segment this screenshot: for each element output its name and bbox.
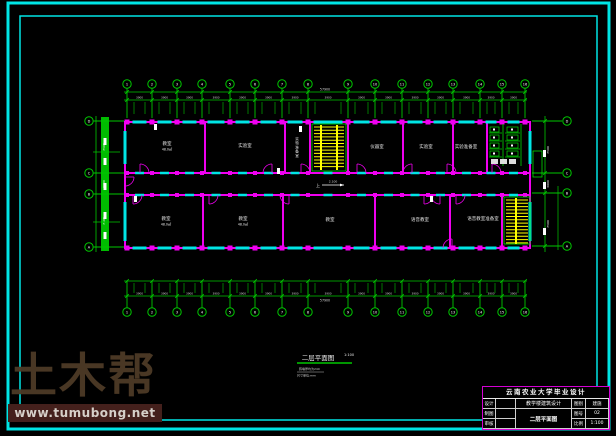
dim-bay-top: 3900 bbox=[239, 96, 246, 100]
axis-number-top: 14 bbox=[478, 83, 483, 87]
axis-letter-right: D bbox=[566, 120, 569, 124]
axis-number-top: 12 bbox=[426, 83, 430, 87]
room-area: 48.0㎡ bbox=[238, 222, 249, 227]
axis-number-top: 6 bbox=[254, 83, 256, 87]
tb-scale-label: 比例 bbox=[572, 419, 586, 429]
fixture-dot bbox=[511, 145, 513, 147]
axis-number-top: 7 bbox=[281, 83, 283, 87]
dim-text-blob bbox=[543, 228, 546, 235]
axis-number-top: 2 bbox=[151, 83, 153, 87]
pier bbox=[478, 193, 482, 197]
pier bbox=[306, 193, 310, 197]
dim-bay-top: 3900 bbox=[136, 96, 143, 100]
pier bbox=[200, 246, 205, 251]
pier bbox=[373, 246, 378, 251]
door-leaf-blob bbox=[154, 124, 157, 130]
dim-bay-bottom: 3900 bbox=[463, 292, 470, 296]
pier bbox=[280, 193, 284, 197]
pier bbox=[523, 171, 527, 175]
fixture-dot bbox=[511, 137, 513, 139]
room-label: 实验室 bbox=[238, 142, 252, 149]
pier bbox=[125, 120, 130, 125]
axis-number-top: 15 bbox=[500, 83, 504, 87]
dim-bay-top: 3900 bbox=[437, 96, 444, 100]
dim-bay-bottom: 3900 bbox=[385, 292, 392, 296]
pier bbox=[306, 171, 310, 175]
pier bbox=[228, 171, 232, 175]
pier bbox=[523, 246, 528, 251]
dim-bay-bottom: 3900 bbox=[239, 292, 246, 296]
tb-draft-label: 制图 bbox=[483, 409, 496, 419]
watermark-url: www.tumubong.net bbox=[8, 404, 162, 422]
dim-bay-top: 3900 bbox=[291, 96, 298, 100]
pier bbox=[346, 193, 350, 197]
corridor-level: 2.100 bbox=[329, 180, 338, 184]
tb-drawing-name: 二层平面图 bbox=[516, 409, 572, 429]
pier bbox=[150, 120, 155, 125]
plan-caption-scale: 1:100 bbox=[344, 353, 354, 357]
dim-bay-bottom: 3900 bbox=[136, 292, 143, 296]
pier bbox=[451, 193, 455, 197]
axis-number-top: 3 bbox=[176, 83, 178, 87]
tb-sheet-type-label: 图别 bbox=[572, 399, 586, 409]
dim-bay-bottom: 3900 bbox=[358, 292, 365, 296]
dim-bay-top: 3900 bbox=[324, 96, 331, 100]
tb-check-name bbox=[496, 419, 516, 429]
pier bbox=[228, 193, 232, 197]
dim-left-value: 7500 bbox=[102, 143, 106, 151]
axis-number-bottom: 9 bbox=[347, 311, 349, 315]
door-leaf-blob bbox=[430, 196, 433, 202]
pier bbox=[228, 246, 233, 251]
door-leaf-blob bbox=[299, 126, 302, 132]
axis-number-bottom: 11 bbox=[400, 311, 404, 315]
room-label: 语音教室准备室 bbox=[467, 215, 499, 222]
stair-arrow-head bbox=[340, 184, 344, 187]
axis-number-top: 9 bbox=[347, 83, 349, 87]
pier bbox=[373, 171, 377, 175]
door-arc bbox=[140, 164, 149, 173]
axis-number-top: 13 bbox=[451, 83, 455, 87]
title-block-title: 云南农业大学毕业设计 bbox=[483, 387, 609, 399]
pier bbox=[280, 246, 285, 251]
pier bbox=[125, 171, 129, 175]
dim-text-blob bbox=[104, 232, 107, 239]
watermark-logo: 土木帮 bbox=[10, 351, 310, 403]
dim-bay-bottom: 3900 bbox=[510, 292, 517, 296]
tb-design-name bbox=[496, 399, 516, 409]
axis-number-bottom: 10 bbox=[373, 311, 377, 315]
stair-up-label: 上 bbox=[316, 182, 320, 188]
pier bbox=[175, 246, 180, 251]
tb-draft-name bbox=[496, 409, 516, 419]
tb-scale-value: 1:100 bbox=[586, 419, 609, 429]
dim-bay-top: 3900 bbox=[411, 96, 418, 100]
room-label: 实验准备室 bbox=[455, 143, 478, 150]
pier bbox=[125, 193, 129, 197]
fixture-dot bbox=[511, 153, 513, 155]
room-label: 仪器室 bbox=[370, 143, 384, 150]
tb-sheet-type: 建施 bbox=[586, 399, 609, 409]
pier bbox=[400, 193, 404, 197]
dim-bay-top: 3900 bbox=[463, 96, 470, 100]
pier bbox=[306, 246, 311, 251]
axis-number-bottom: 1 bbox=[126, 311, 128, 315]
axis-number-bottom: 3 bbox=[176, 311, 178, 315]
pier bbox=[478, 246, 483, 251]
pier bbox=[523, 193, 527, 197]
cad-sheet: 1234567891011121314151657900390039003900… bbox=[0, 0, 616, 436]
pier bbox=[175, 171, 179, 175]
room-label: 教室 bbox=[326, 216, 335, 223]
axis-number-bottom: 7 bbox=[281, 311, 283, 315]
pier bbox=[253, 120, 258, 125]
dim-right-value: 3000 bbox=[546, 180, 550, 188]
axis-number-bottom: 14 bbox=[478, 311, 483, 315]
pier bbox=[500, 193, 504, 197]
door-arc bbox=[456, 195, 465, 204]
pier bbox=[346, 246, 351, 251]
dim-bay-bottom: 3900 bbox=[161, 292, 168, 296]
dim-bay-top: 3900 bbox=[186, 96, 193, 100]
dim-bay-bottom: 3900 bbox=[411, 292, 418, 296]
pier bbox=[373, 120, 378, 125]
pier bbox=[426, 246, 431, 251]
pier bbox=[500, 246, 505, 251]
pier bbox=[253, 171, 257, 175]
dim-bay-top: 3900 bbox=[487, 96, 494, 100]
dim-bay-top: 3900 bbox=[265, 96, 272, 100]
dim-bay-bottom: 3900 bbox=[487, 292, 494, 296]
room-area: 48.0㎡ bbox=[162, 147, 173, 152]
pier bbox=[478, 171, 482, 175]
dim-overall-top: 57900 bbox=[320, 88, 330, 92]
title-block-grid: 设计 教学楼建筑设计 图别 建施 制图 二层平面图 图号 02 审核 比例 1:… bbox=[483, 399, 609, 429]
dim-bay-bottom: 3900 bbox=[324, 292, 331, 296]
fixture-dot bbox=[493, 129, 495, 131]
dim-left-value: 7500 bbox=[102, 217, 106, 225]
door-arc bbox=[357, 164, 366, 173]
dim-bay-bottom: 3900 bbox=[186, 292, 193, 296]
pier bbox=[451, 246, 456, 251]
pier bbox=[253, 246, 258, 251]
axis-number-bottom: 6 bbox=[254, 311, 256, 315]
dim-bay-top: 3900 bbox=[385, 96, 392, 100]
pier bbox=[150, 171, 154, 175]
pier bbox=[200, 120, 205, 125]
pier bbox=[175, 193, 179, 197]
dim-bay-top: 3900 bbox=[510, 96, 517, 100]
pier bbox=[451, 171, 455, 175]
pier bbox=[426, 193, 430, 197]
axis-number-bottom: 8 bbox=[307, 311, 309, 315]
dim-overall-bottom: 57900 bbox=[320, 299, 330, 303]
pier bbox=[478, 120, 483, 125]
dim-bay-top: 3900 bbox=[358, 96, 365, 100]
pier bbox=[426, 171, 430, 175]
pier bbox=[150, 193, 154, 197]
dim-bay-bottom: 3900 bbox=[265, 292, 272, 296]
door-arc bbox=[209, 195, 218, 204]
tb-project-name: 教学楼建筑设计 bbox=[516, 399, 572, 409]
door-leaf-blob bbox=[134, 196, 137, 202]
axis-number-top: 11 bbox=[400, 83, 404, 87]
sink bbox=[500, 159, 507, 164]
axis-number-top: 10 bbox=[373, 83, 377, 87]
sink bbox=[509, 159, 516, 164]
axis-number-bottom: 2 bbox=[151, 311, 153, 315]
dim-bay-bottom: 3900 bbox=[291, 292, 298, 296]
door-leaf-blob bbox=[277, 168, 280, 174]
pier bbox=[426, 120, 431, 125]
axis-number-bottom: 12 bbox=[426, 311, 430, 315]
axis-number-top: 16 bbox=[523, 83, 527, 87]
fixture-dot bbox=[493, 145, 495, 147]
dim-bay-top: 3900 bbox=[212, 96, 219, 100]
room-label: 教室 bbox=[239, 215, 248, 222]
door-arc bbox=[403, 164, 412, 173]
fixture-dot bbox=[493, 153, 495, 155]
fixture-dot bbox=[493, 137, 495, 139]
axis-number-bottom: 13 bbox=[451, 311, 455, 315]
pier bbox=[400, 120, 405, 125]
dim-bay-bottom: 3900 bbox=[212, 292, 219, 296]
room-label: 教室 bbox=[162, 215, 171, 222]
room-label: 教室 bbox=[163, 140, 172, 147]
room-label: 语音教室 bbox=[411, 216, 429, 223]
room-label: 实验室 bbox=[419, 143, 433, 150]
pier bbox=[125, 246, 130, 251]
axis-number-bottom: 5 bbox=[229, 311, 231, 315]
axis-letter-left: D bbox=[88, 120, 91, 124]
door-arc bbox=[263, 164, 272, 173]
pier bbox=[200, 193, 204, 197]
axis-number-top: 8 bbox=[307, 83, 309, 87]
pier bbox=[346, 171, 350, 175]
axis-number-bottom: 15 bbox=[500, 311, 504, 315]
dim-right-value: 7500 bbox=[546, 220, 550, 228]
tb-sheet-no-label: 图号 bbox=[572, 409, 586, 419]
dim-text-blob bbox=[104, 158, 107, 165]
door-arc bbox=[492, 164, 501, 173]
pier bbox=[373, 193, 377, 197]
pier bbox=[253, 193, 257, 197]
pier bbox=[280, 171, 284, 175]
title-block: 云南农业大学毕业设计 设计 教学楼建筑设计 图别 建施 制图 二层平面图 图号 … bbox=[482, 386, 610, 430]
pier bbox=[523, 120, 528, 125]
entrance-door-arc bbox=[125, 177, 134, 186]
pier bbox=[451, 120, 456, 125]
stair1-outline bbox=[312, 124, 346, 171]
pier bbox=[228, 120, 233, 125]
pier bbox=[175, 120, 180, 125]
sink bbox=[491, 159, 498, 164]
dim-right-value: 7500 bbox=[546, 146, 550, 154]
pier bbox=[400, 246, 405, 251]
tb-sheet-no: 02 bbox=[586, 409, 609, 419]
pier bbox=[150, 246, 155, 251]
axis-number-top: 5 bbox=[229, 83, 231, 87]
pier bbox=[280, 120, 285, 125]
tb-design-label: 设计 bbox=[483, 399, 496, 409]
pier bbox=[500, 120, 505, 125]
pier bbox=[200, 171, 204, 175]
pier bbox=[306, 120, 311, 125]
dim-left-value: 3000 bbox=[102, 180, 106, 188]
room-area: 48.0㎡ bbox=[161, 222, 172, 227]
axis-number-bottom: 16 bbox=[523, 311, 527, 315]
dim-bay-top: 3900 bbox=[161, 96, 168, 100]
dim-bay-bottom: 3900 bbox=[437, 292, 444, 296]
tb-check-label: 审核 bbox=[483, 419, 496, 429]
fixture-dot bbox=[511, 129, 513, 131]
axis-number-top: 1 bbox=[126, 83, 128, 87]
room-label: 实验准备室 bbox=[295, 136, 299, 158]
